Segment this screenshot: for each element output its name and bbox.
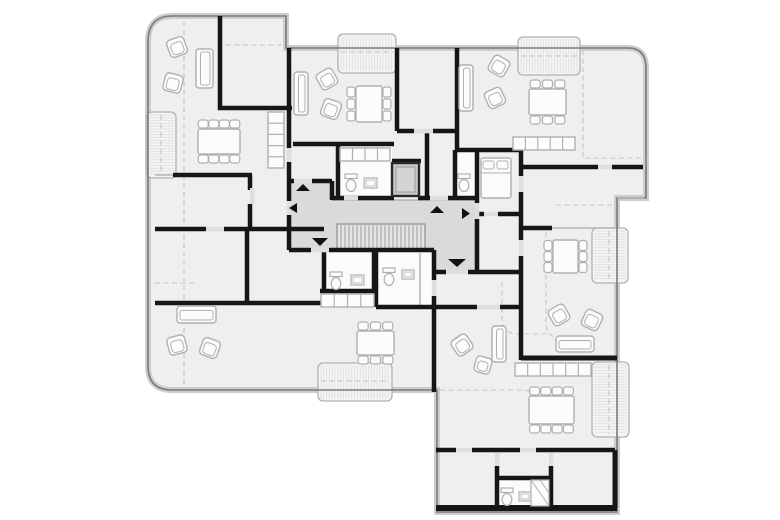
chair [563, 387, 573, 395]
armchair [473, 355, 493, 375]
chair [209, 155, 219, 163]
chair [383, 111, 391, 121]
sofa [294, 72, 308, 115]
chair [383, 322, 393, 330]
sofa [556, 336, 594, 352]
door-sill [446, 270, 468, 275]
door-sill [414, 129, 433, 134]
door-sill [250, 188, 255, 204]
toilet-tank [330, 272, 342, 277]
chair [530, 425, 540, 433]
door-sill [287, 148, 292, 162]
toilet-bowl [459, 180, 469, 192]
toilet-bowl [346, 180, 356, 192]
chair [543, 80, 553, 88]
toilet-bowl [331, 278, 341, 290]
chair [358, 356, 368, 364]
dining-table [553, 240, 578, 273]
toilet-bowl [384, 274, 394, 286]
chair [371, 322, 381, 330]
door-sill [456, 448, 472, 453]
chair [552, 425, 562, 433]
chair [544, 263, 552, 273]
chair [530, 80, 540, 88]
chair [530, 116, 540, 124]
chair [579, 252, 587, 262]
chair [555, 116, 565, 124]
toilet-tank [458, 174, 470, 179]
chair [541, 425, 551, 433]
chair [579, 241, 587, 251]
chair [230, 120, 240, 128]
chair [383, 87, 391, 97]
chair [198, 120, 208, 128]
toilet-bowl [502, 494, 512, 506]
door-sill [344, 196, 358, 201]
chair [347, 99, 355, 109]
toilet-tank [383, 268, 395, 273]
door-sill [484, 212, 498, 217]
toilet-tank [345, 174, 357, 179]
armchair-body [473, 355, 493, 375]
chair [563, 425, 573, 433]
chair [358, 322, 368, 330]
dining-table [529, 89, 566, 115]
sofa [492, 326, 506, 362]
dining-table [357, 331, 394, 355]
door-sill [495, 453, 500, 466]
chair [347, 87, 355, 97]
chair [544, 241, 552, 251]
chair [383, 356, 393, 364]
dining-table [198, 129, 240, 154]
chair [579, 263, 587, 273]
kitchen-counter [268, 112, 284, 168]
door-sill [477, 305, 500, 310]
door-sill [520, 448, 536, 453]
chair [371, 356, 381, 364]
chair [541, 387, 551, 395]
door-sill [519, 176, 524, 192]
dining-table [356, 86, 382, 122]
chair [544, 252, 552, 262]
door-sill [475, 203, 480, 219]
floor-plan-drawing [0, 0, 780, 520]
chair [347, 111, 355, 121]
dining-table [529, 396, 574, 424]
chair [530, 387, 540, 395]
kitchen-counter [513, 137, 575, 150]
door-sill [430, 196, 448, 201]
chair [230, 155, 240, 163]
chair [383, 99, 391, 109]
chair [219, 155, 229, 163]
door-sill [598, 165, 612, 170]
sofa [459, 65, 473, 111]
door-sill [549, 453, 554, 466]
floor-plan-page [0, 0, 780, 520]
armchair [166, 334, 188, 356]
toilet-tank [501, 488, 513, 493]
armchair [162, 72, 184, 94]
elevator-cab [396, 167, 415, 192]
door-sill [432, 280, 437, 296]
door-sill [519, 240, 524, 256]
door-sill [206, 227, 224, 232]
chair [555, 80, 565, 88]
chair [198, 155, 208, 163]
chair [543, 116, 553, 124]
bed [481, 158, 511, 198]
chair [219, 120, 229, 128]
door-sill [311, 248, 329, 253]
chair [209, 120, 219, 128]
door-sill [294, 179, 312, 184]
chair [552, 387, 562, 395]
